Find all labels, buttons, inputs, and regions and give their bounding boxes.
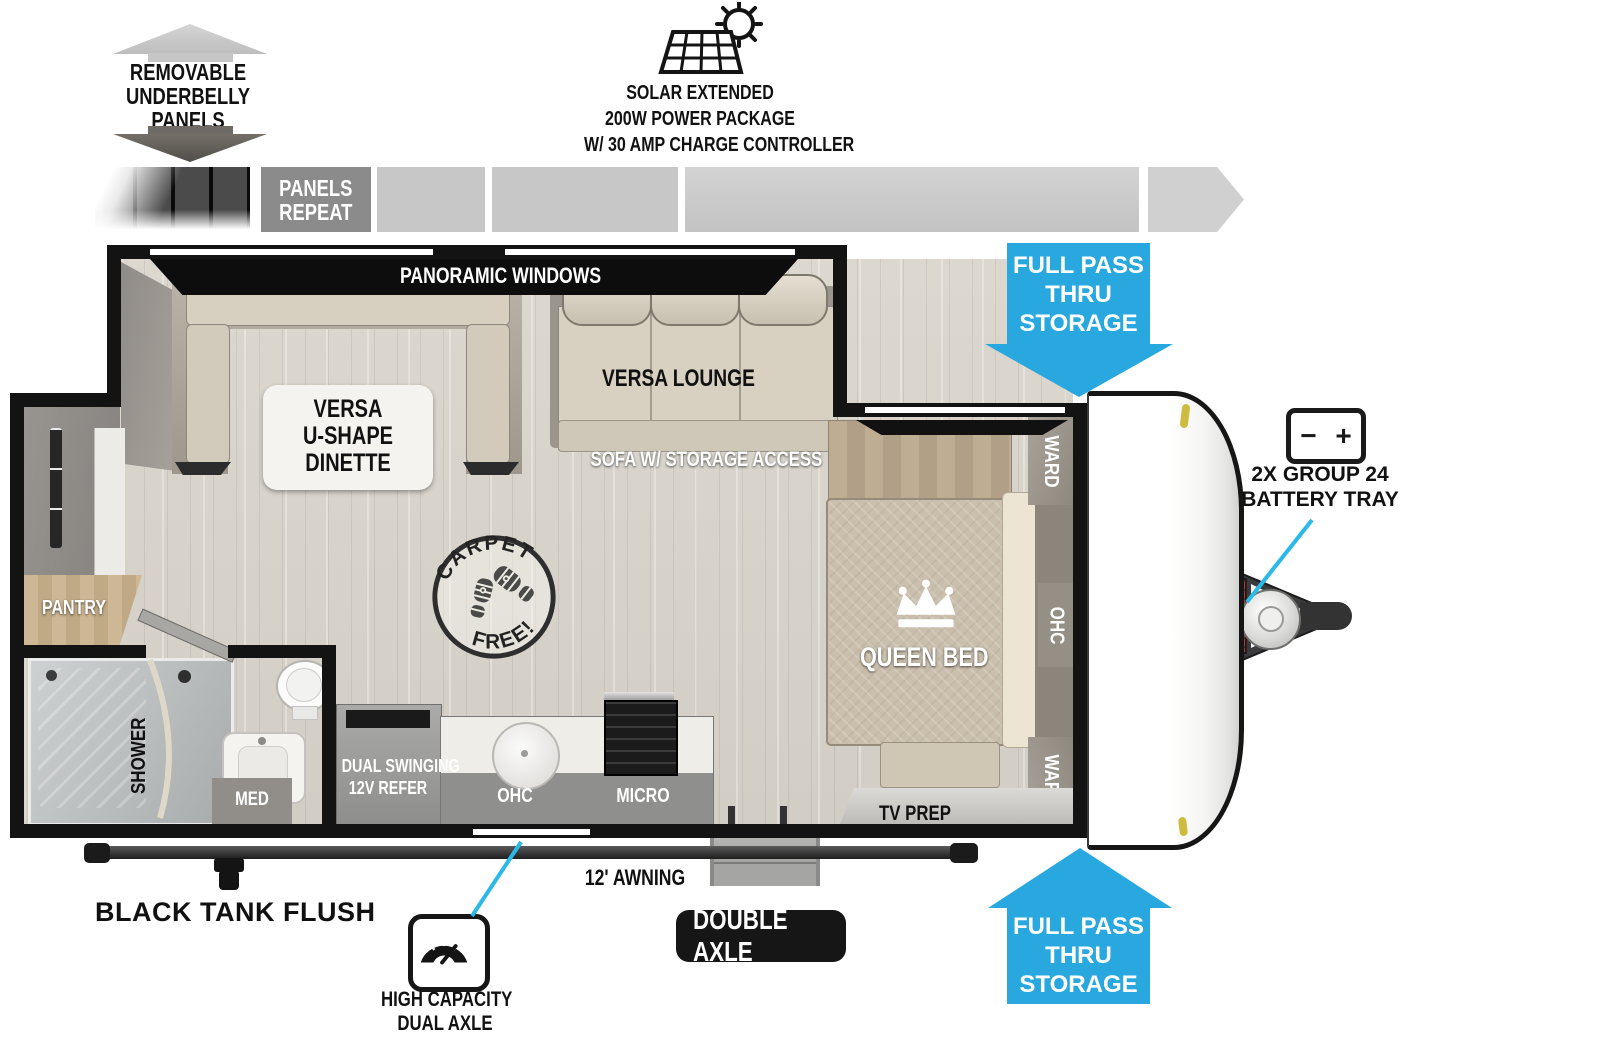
solar-panel-icon [645, 2, 775, 80]
black-tank-flush-valve-knob [219, 870, 239, 890]
awning-rail-end-cap [84, 843, 110, 863]
shower-head-dot [46, 670, 57, 681]
refrigerator-top-vent [346, 710, 430, 728]
bed-foot-bench [880, 742, 1000, 788]
panel-bar-segment [377, 167, 485, 232]
front-cap [1087, 391, 1244, 850]
dinette-left-cushion [186, 324, 230, 464]
axle-location-strip [473, 829, 590, 835]
awning-label: 12' AWNING [583, 866, 687, 890]
shower-label: SHOWER [129, 709, 151, 803]
rear-wall-upper [107, 245, 121, 407]
battery-tray-label: 2X GROUP 24 BATTERY TRAY [1240, 462, 1400, 512]
hitch-coupler [1300, 602, 1352, 630]
underbelly-up-arrow-icon [113, 24, 267, 54]
panels-repeat-label: PANELS REPEAT [279, 176, 352, 224]
bedroom-window-band [856, 420, 1068, 435]
bathroom-wall [228, 645, 336, 658]
solar-label: SOLAR EXTENDED 200W POWER PACKAGE W/ 30 … [584, 80, 816, 158]
pass-thru-bottom-arrowhead [988, 848, 1172, 908]
black-tank-flush-label: BLACK TANK FLUSH [95, 898, 375, 927]
high-capacity-label: HIGH CAPACITY DUAL AXLE [381, 988, 509, 1036]
scale-icon [408, 914, 490, 992]
front-wall [1073, 403, 1087, 838]
underbelly-down-arrow-icon [113, 134, 267, 162]
bathroom-wall [24, 645, 146, 658]
entry-step-lower [714, 862, 816, 886]
micro-label: MICRO [607, 786, 679, 808]
toilet-seat [286, 668, 322, 702]
panel-bar-segment-striped [95, 167, 250, 232]
stove [604, 700, 678, 776]
ward-top-label: WARD [1039, 435, 1062, 487]
shower-head-dot [178, 670, 191, 683]
battery-icon: − + [1286, 408, 1366, 464]
double-axle-label: DOUBLE AXLE [693, 904, 829, 968]
panel-bar-segment [492, 167, 678, 232]
crown-icon [893, 576, 959, 634]
rv-floorplan-diagram: REMOVABLE UNDERBELLY PANELS SOLAR EXTEND… [0, 0, 1600, 1041]
window-strip [865, 407, 1065, 413]
dinette-right-cushion [466, 324, 510, 464]
battery-plus-symbol: + [1335, 420, 1351, 452]
pantry-white-column [94, 428, 125, 580]
sofa-storage-label: SOFA W/ STORAGE ACCESS [591, 449, 755, 472]
battery-minus-symbol: − [1300, 420, 1316, 452]
med-label: MED [220, 790, 284, 811]
refer-label: DUAL SWINGING 12V REFER [342, 755, 435, 799]
sink-drain [521, 750, 528, 757]
tv-prep-label: TV PREP [871, 803, 959, 826]
window-strip [505, 249, 795, 255]
ohc-bedroom-cabinet: OHC [1038, 583, 1074, 667]
propane-tank-valve [1258, 606, 1284, 632]
rear-wall-lower [10, 393, 24, 838]
pass-thru-top-label: FULL PASS THRU STORAGE [1007, 243, 1150, 338]
panels-repeat-segment: PANELS REPEAT [261, 167, 371, 232]
dinette-label: VERSA U-SHAPE DINETTE [280, 396, 416, 477]
awning-rail-end-cap [950, 843, 978, 863]
pass-thru-bottom-box: FULL PASS THRU STORAGE [1007, 908, 1150, 1004]
pass-thru-bottom-label: FULL PASS THRU STORAGE [1007, 908, 1150, 999]
toilet-base [292, 706, 318, 720]
bathroom-wall [322, 645, 336, 824]
pantry-label: PANTRY [34, 598, 114, 620]
versa-lounge-label: VERSA LOUNGE [602, 366, 738, 392]
ohc-kitchen-label: OHC [483, 786, 547, 808]
bed-head-cushion [1002, 492, 1038, 748]
underbelly-down-arrow-shaft [148, 126, 233, 135]
window-strip [150, 249, 433, 255]
pass-thru-top-box: FULL PASS THRU STORAGE [1007, 243, 1150, 344]
step-wall-vertical [833, 245, 847, 417]
panoramic-windows-label: PANORAMIC WINDOWS [400, 264, 560, 288]
panel-bar-segment-long [685, 167, 1139, 232]
queen-bed-label: QUEEN BED [860, 643, 972, 672]
underbelly-label: REMOVABLE UNDERBELLY PANELS [112, 60, 264, 132]
panel-bar-arrow-end [1148, 167, 1244, 232]
ohc-bedroom-label: OHC [1045, 606, 1068, 644]
double-axle-badge: DOUBLE AXLE [676, 910, 846, 962]
rear-step-wall [10, 393, 121, 407]
bathroom-faucet [258, 737, 266, 745]
pantry-door-handle [50, 428, 62, 548]
